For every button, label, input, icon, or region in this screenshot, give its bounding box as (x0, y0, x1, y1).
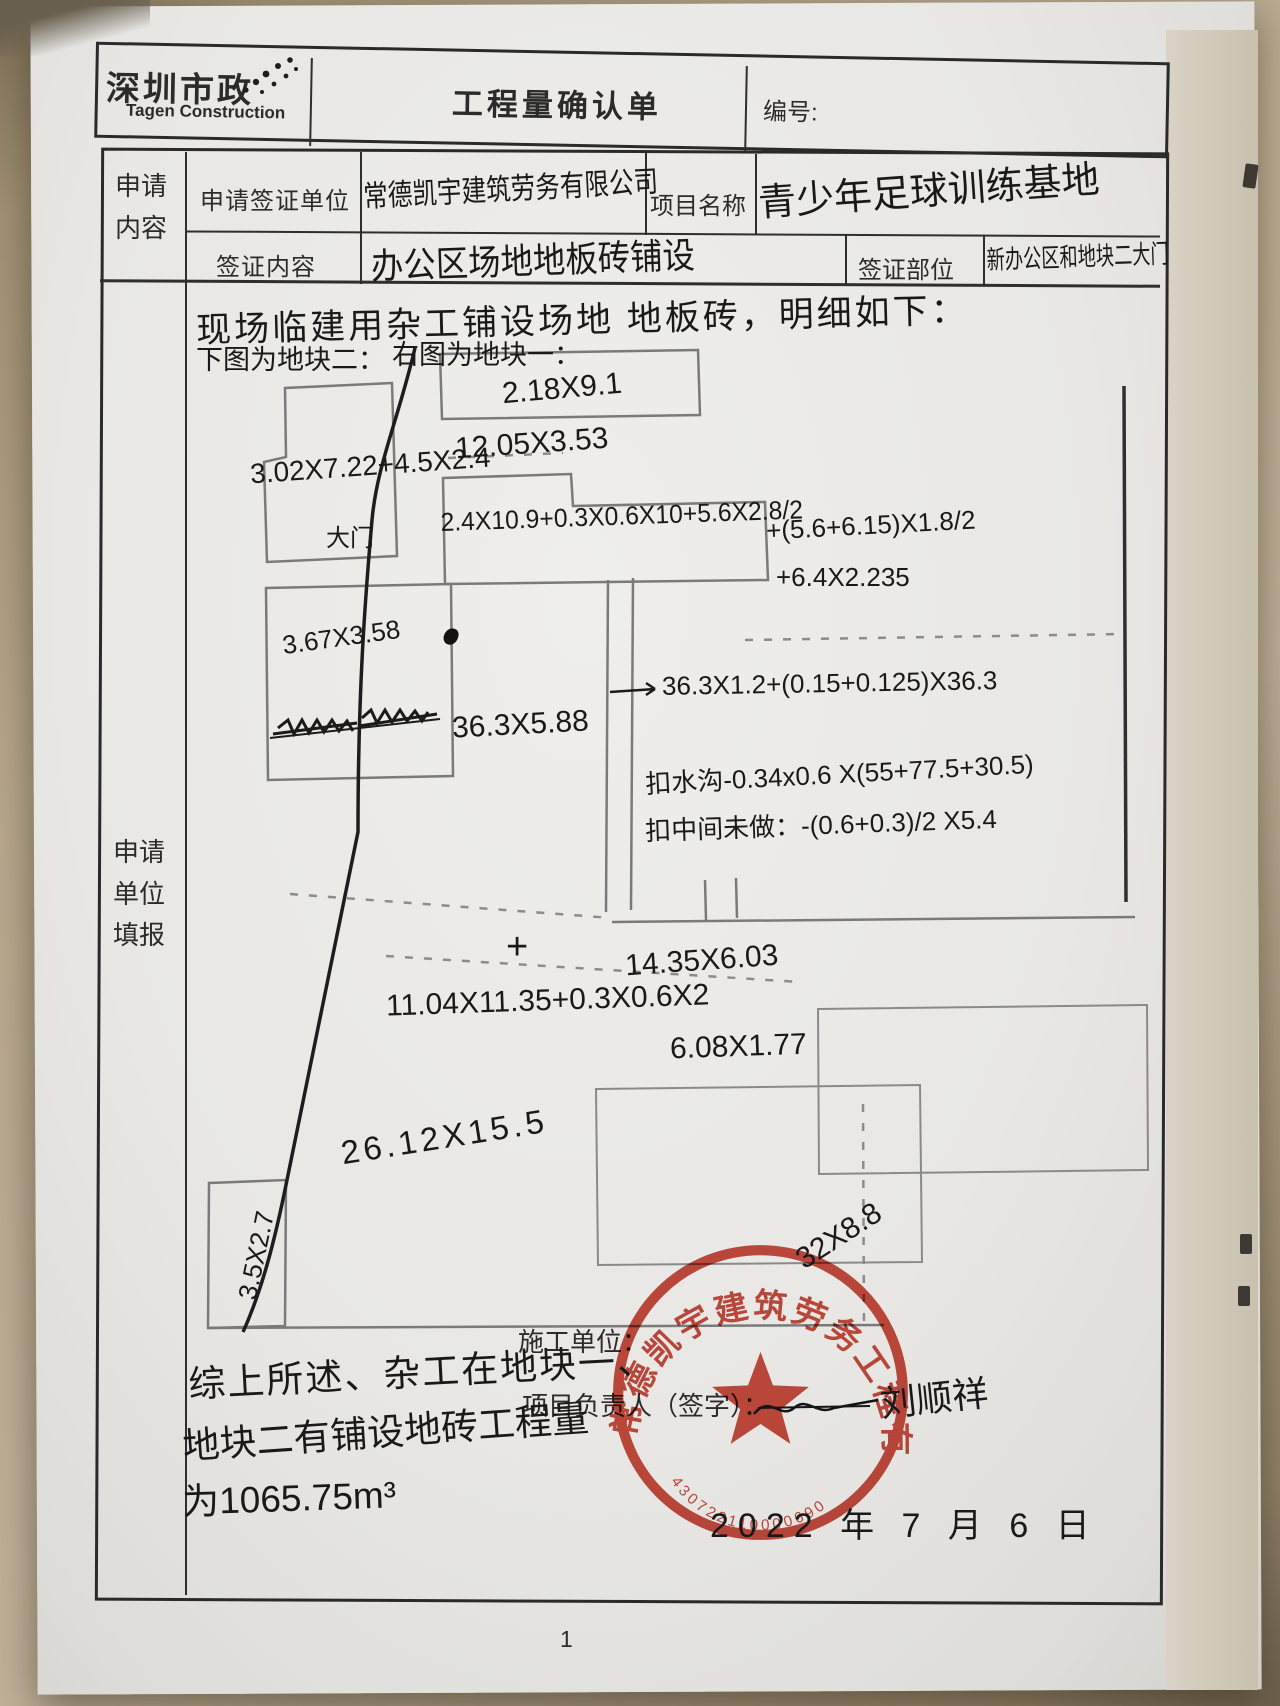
field-applicant-fill: 申请单位填报 (110, 832, 168, 957)
measure-label: 6.08X1.77 (669, 1028, 807, 1067)
summary-line3: 为1065.75m³ (181, 1464, 397, 1525)
number-label: 编号: (763, 92, 818, 128)
caption-block1: 右图为地块一： (392, 333, 581, 372)
page-title: 工程量确认单 (452, 78, 663, 127)
signature-scribble (750, 1384, 885, 1430)
field-apply-content: 申请内容 (112, 166, 170, 249)
date-value: 2022 年 7 月 6 日 (710, 1498, 1099, 1547)
gate-label: 大门 (326, 518, 374, 553)
edge-smudge (1240, 1234, 1252, 1254)
logo-text-en: Tagen Construction (126, 101, 286, 124)
field-apply-unit-label: 申请签证单位 (200, 181, 350, 216)
plus-correction: + (506, 926, 528, 969)
table-cell-divider (845, 235, 847, 284)
caption-block2: 下图为地块二： (196, 338, 385, 377)
measure-label: 36.3X5.88 (451, 704, 589, 745)
visa-part-value: 新办公区和地块二大门 (986, 234, 1169, 277)
field-visa-part-label: 签证部位 (858, 250, 954, 285)
underlying-page-edge (1166, 30, 1258, 1690)
measure-formula: 36.3X1.2+(0.15+0.125)X36.3 (662, 665, 998, 702)
measure-formula: +6.4X2.235 (776, 562, 910, 593)
table-cell-divider (983, 236, 985, 284)
scanned-form-photo: 深圳市政 Tagen Construction 工程量确认单 编号: 申请内容 … (0, 0, 1280, 1706)
page-number: 1 (560, 1626, 573, 1653)
edge-smudge (1238, 1286, 1250, 1306)
field-project-name-label: 项目名称 (650, 186, 746, 221)
field-visa-content-label: 签证内容 (216, 247, 316, 282)
logo-dots-icon (240, 52, 302, 98)
